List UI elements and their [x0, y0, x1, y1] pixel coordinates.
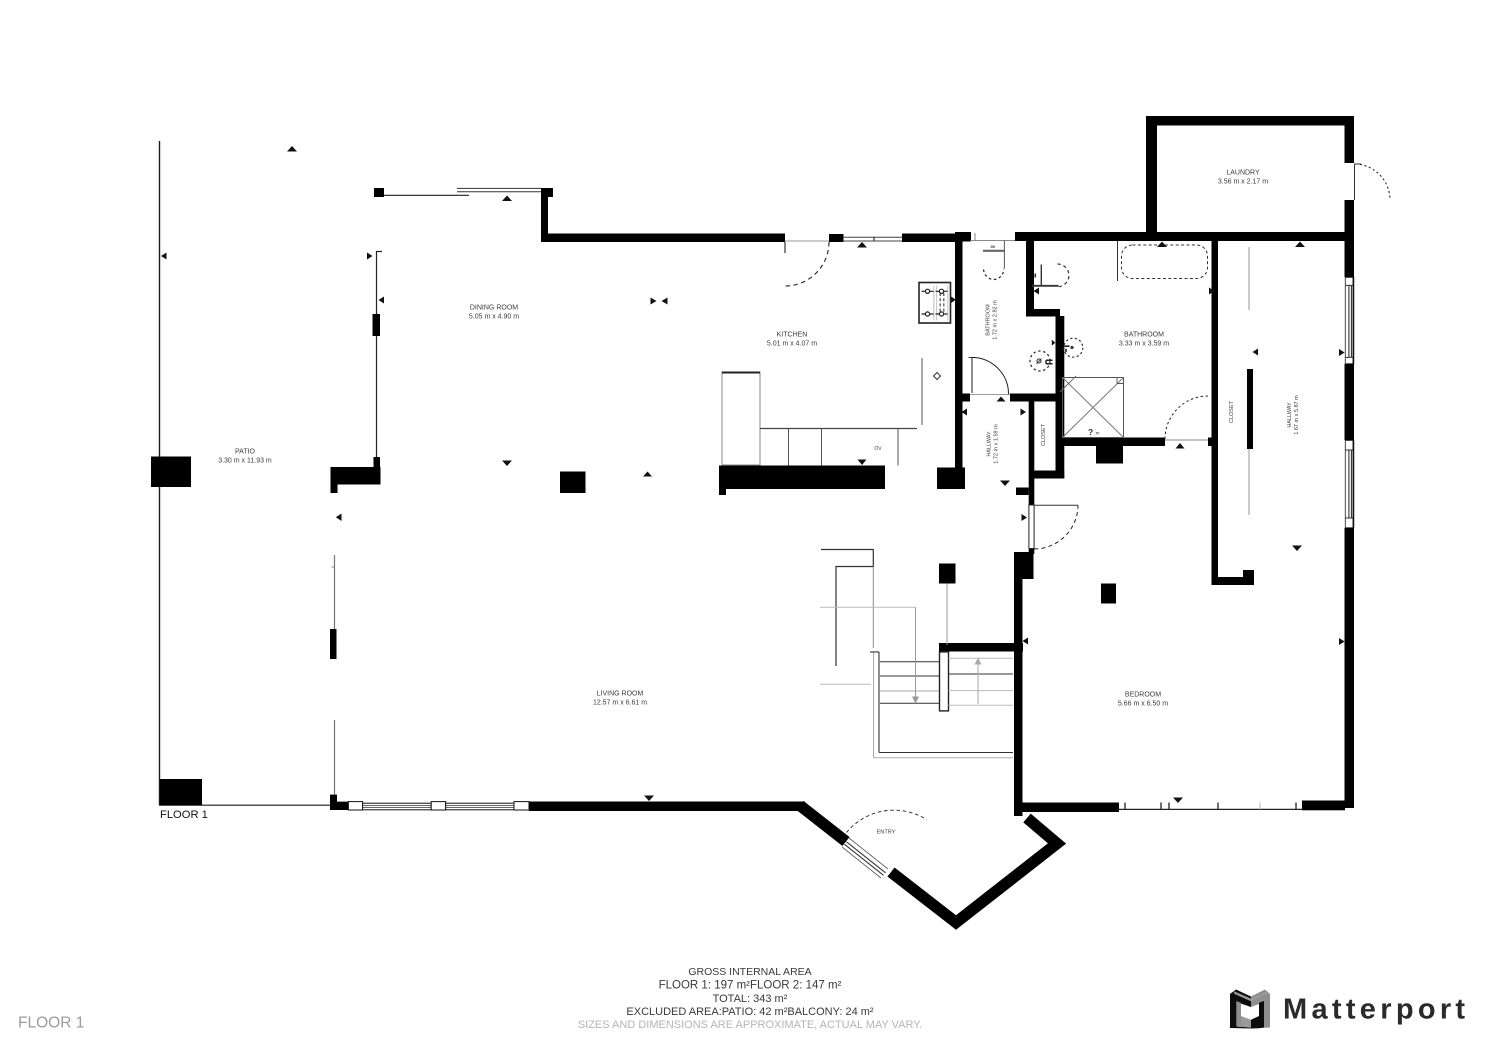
svg-text:PATIO: PATIO [235, 449, 256, 456]
svg-text:BATHROOM: BATHROOM [986, 304, 992, 336]
svg-text:5.05 m x 4.90 m: 5.05 m x 4.90 m [469, 314, 519, 321]
svg-text:1.67 m x 5.87 m: 1.67 m x 5.87 m [1294, 395, 1300, 435]
svg-text:LAUNDRY: LAUNDRY [1226, 170, 1260, 177]
svg-text:DINING ROOM: DINING ROOM [470, 305, 518, 312]
svg-text:FLOOR 1: 197 m²FLOOR 2: 147 m²: FLOOR 1: 197 m²FLOOR 2: 147 m² [659, 980, 842, 992]
svg-text:CLOSET: CLOSET [1229, 400, 1235, 423]
svg-text:BATHROOM: BATHROOM [1124, 332, 1164, 339]
svg-text:5.66 m x 6.50 m: 5.66 m x 6.50 m [1118, 701, 1168, 708]
svg-text:HALLWAY: HALLWAY [1287, 402, 1293, 428]
svg-text:SIZES AND DIMENSIONS ARE APPRO: SIZES AND DIMENSIONS ARE APPROXIMATE, AC… [578, 1019, 922, 1031]
svg-text:FLOOR 1: FLOOR 1 [18, 1015, 84, 1032]
svg-text:3.30 m x 11.93 m: 3.30 m x 11.93 m [218, 458, 272, 465]
svg-text:5.01 m x 4.07 m: 5.01 m x 4.07 m [767, 341, 817, 348]
svg-text:1.72 m x 1.59 m: 1.72 m x 1.59 m [994, 424, 1000, 464]
svg-text:TOTAL: 343 m²: TOTAL: 343 m² [713, 993, 788, 1005]
svg-text:12.57 m x 6.61 m: 12.57 m x 6.61 m [593, 700, 647, 707]
svg-text:1.72 m x 2.82 m: 1.72 m x 2.82 m [993, 300, 999, 340]
svg-text:EXCLUDED AREA:PATIO: 42 m²BALC: EXCLUDED AREA:PATIO: 42 m²BALCONY: 24 m² [626, 1006, 873, 1018]
svg-text:CLOSET: CLOSET [1041, 423, 1047, 446]
svg-text:LIVING ROOM: LIVING ROOM [597, 691, 644, 698]
svg-text:ENTRY: ENTRY [877, 830, 896, 836]
svg-text:OV: OV [874, 446, 882, 452]
svg-text:KITCHEN: KITCHEN [777, 332, 808, 339]
svg-text:FLOOR 1: FLOOR 1 [160, 809, 208, 821]
svg-text:BEDROOM: BEDROOM [1125, 692, 1161, 699]
svg-text:GROSS INTERNAL AREA: GROSS INTERNAL AREA [688, 966, 811, 978]
svg-text:3.33 m x 3.59 m: 3.33 m x 3.59 m [1119, 341, 1169, 348]
svg-text:3.56 m x 2.17 m: 3.56 m x 2.17 m [1218, 179, 1268, 186]
svg-text:HALLWAY: HALLWAY [987, 431, 993, 457]
svg-text:Matterport: Matterport [1283, 994, 1469, 1026]
